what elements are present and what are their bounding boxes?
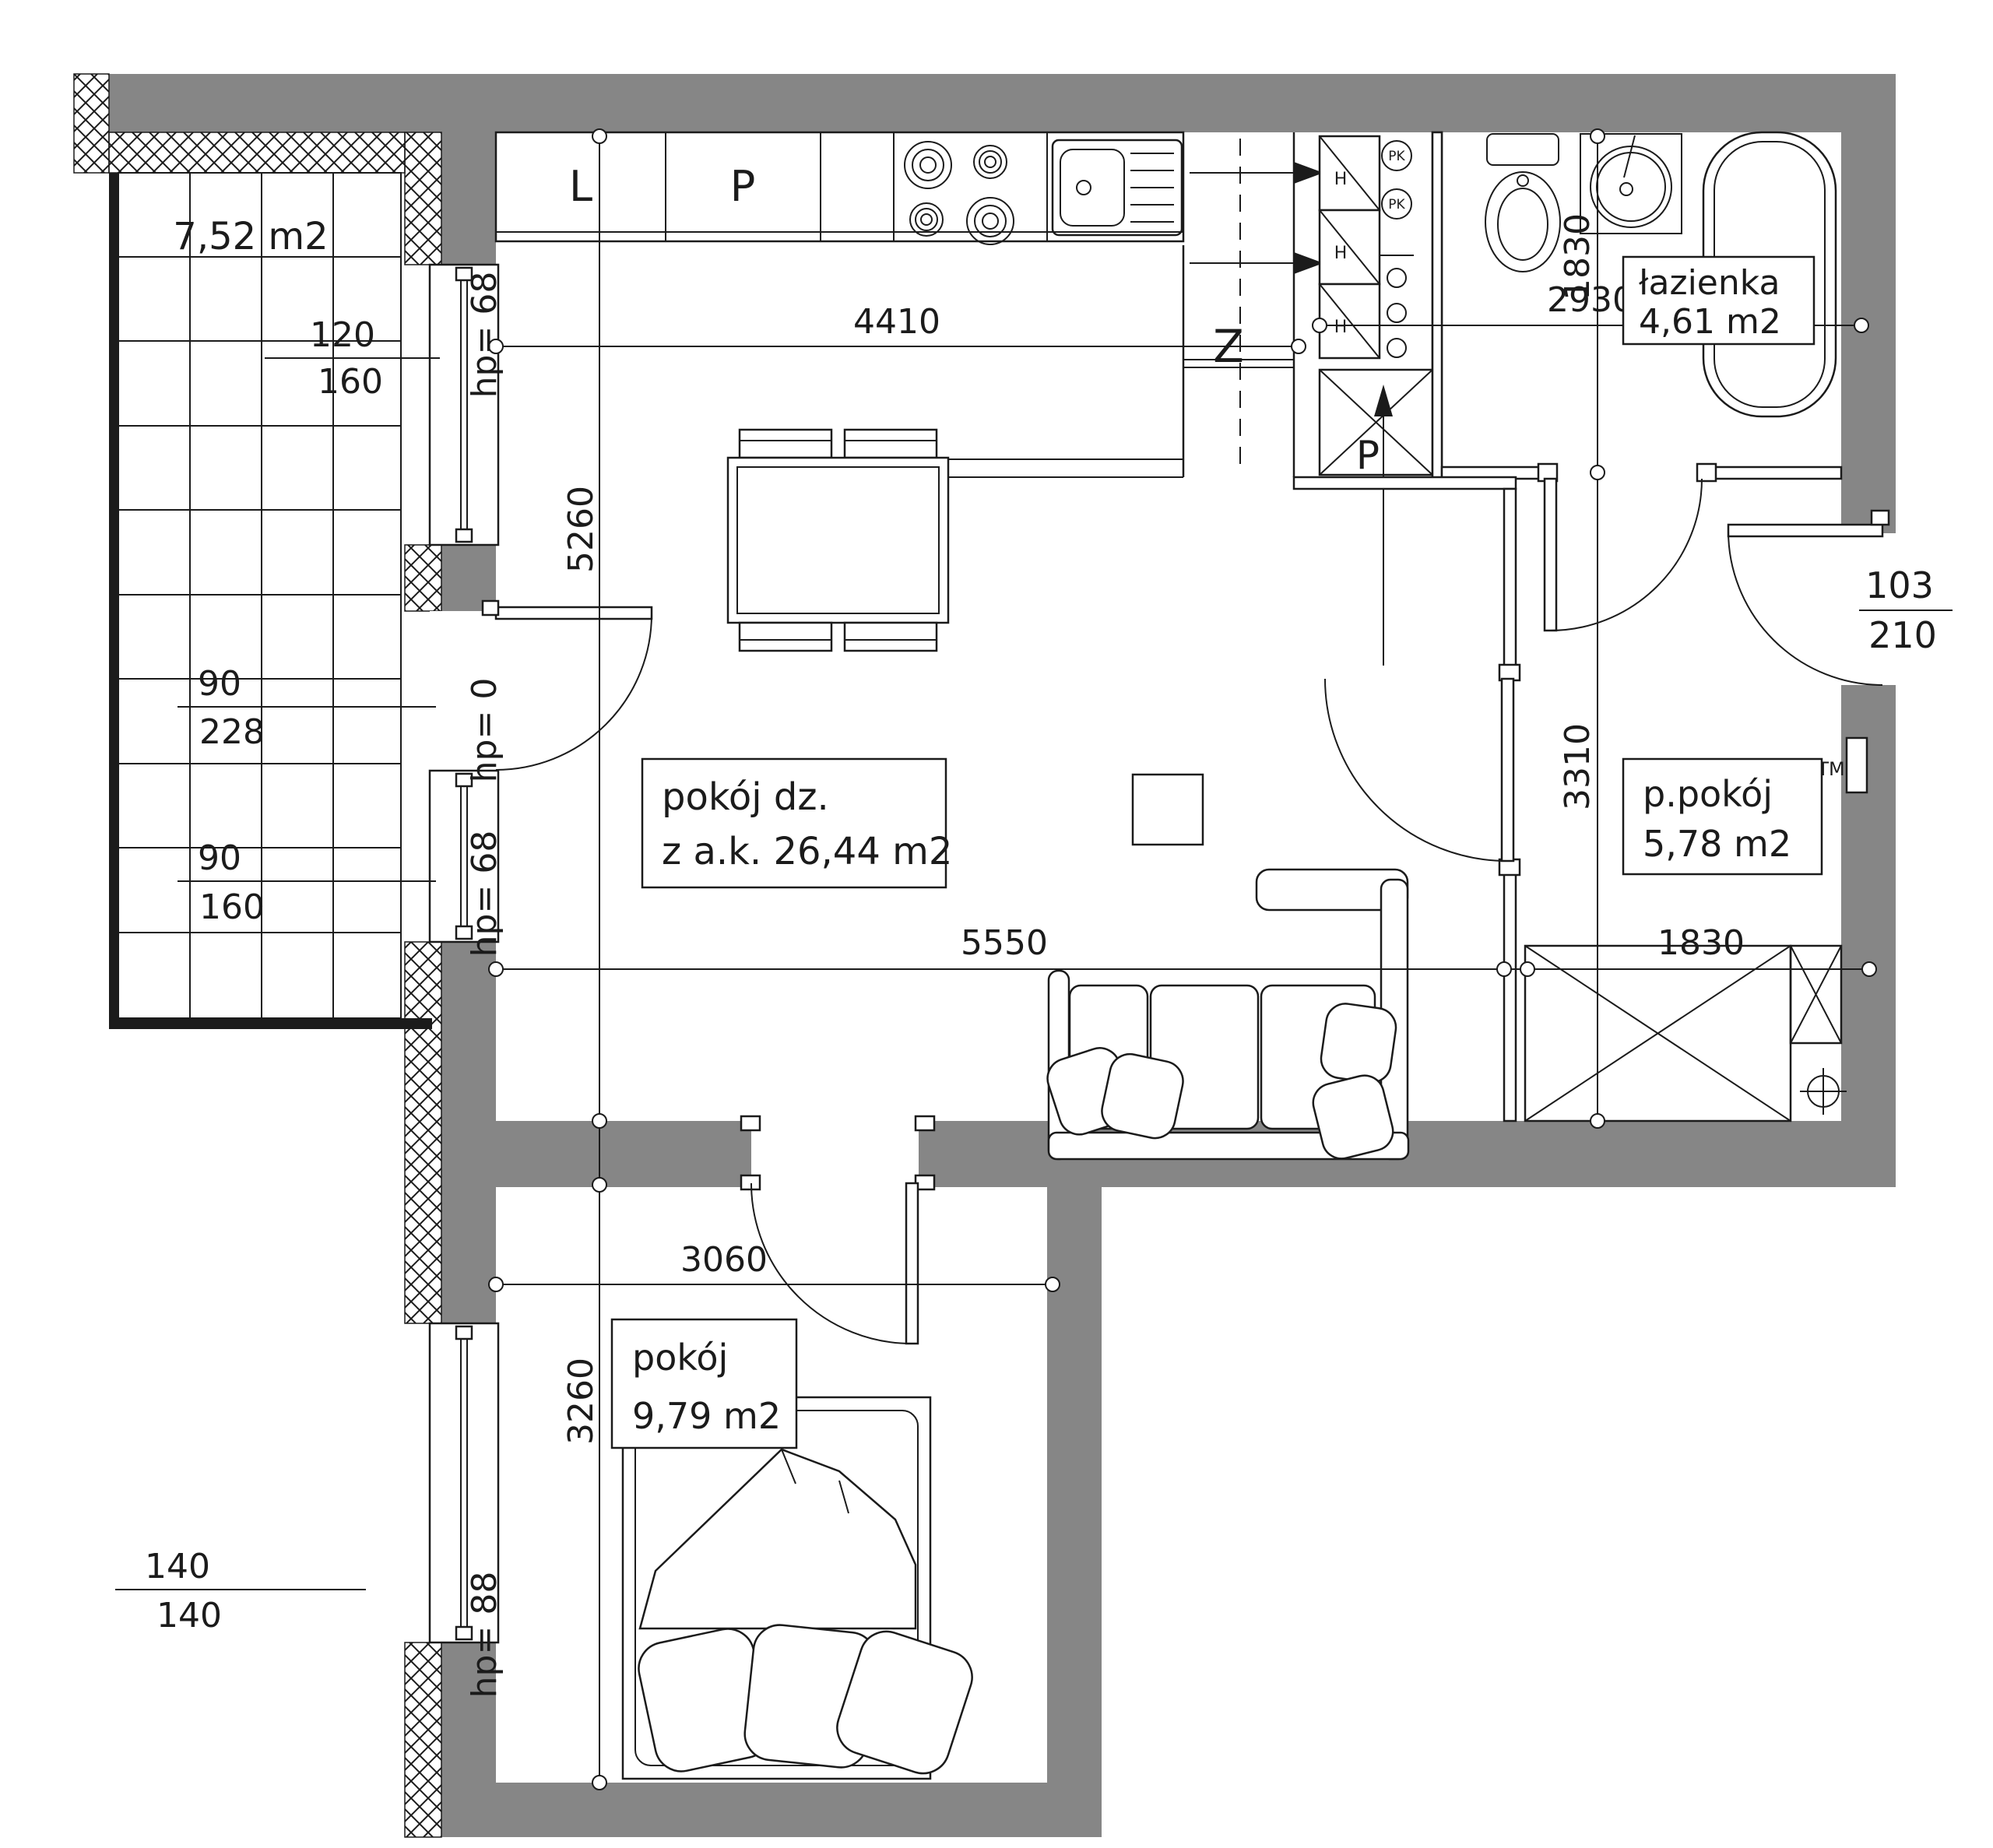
bathroom-door-leaf (1545, 479, 1556, 631)
pk-badge: PK (1382, 189, 1411, 219)
svg-text:5,78 m2: 5,78 m2 (1643, 823, 1791, 865)
chair (845, 623, 937, 651)
duct-box: H (1320, 284, 1380, 358)
svg-text:H: H (1334, 318, 1348, 337)
bathroom-door-swing-arc (1550, 479, 1702, 631)
svg-text:pokój dz.: pokój dz. (662, 775, 829, 819)
pk-badge: PK (1382, 141, 1411, 170)
svg-text:5260: 5260 (561, 486, 601, 573)
svg-text:90: 90 (198, 664, 241, 704)
kitchen-sink-icon (1053, 140, 1182, 235)
wall-bathroom-west (1432, 132, 1442, 479)
balcony-door (430, 601, 652, 770)
closet-z: Z (948, 132, 1294, 477)
svg-text:140: 140 (145, 1547, 210, 1586)
entrance-door-swing-arc (1728, 531, 1882, 685)
balcony-area-label: 7,52 m2 (173, 215, 328, 258)
entrance-door-size: 103 210 (1859, 564, 1953, 656)
dining-table (728, 458, 948, 623)
bathroom-door (1538, 464, 1716, 631)
meter-niche (1847, 738, 1867, 792)
arrow-right-icon (1190, 252, 1323, 274)
svg-text:3060: 3060 (680, 1240, 768, 1280)
svg-text:H: H (1334, 170, 1348, 189)
living-door (1325, 665, 1520, 875)
floor-drain-icon (1800, 1068, 1847, 1115)
window-120-hp: hp= 68 (465, 272, 504, 399)
svg-text:pokój: pokój (632, 1337, 728, 1379)
cooktop-icon (905, 142, 1014, 244)
window-140-size: 140 140 (115, 1547, 366, 1635)
dimension-living-height: 5260 3260 (561, 129, 606, 1790)
entrance-door (1728, 511, 1889, 685)
wall-bedroom-bottom (441, 1783, 1102, 1837)
living-door-leaf (1502, 679, 1513, 861)
room-label-hall: p.pokój 5,78 m2 (1623, 759, 1822, 874)
balcony-edge-bottom (109, 1018, 432, 1029)
duct-box: H (1320, 210, 1380, 284)
sofa-pillow (1098, 1050, 1187, 1142)
wardrobe-small (1791, 946, 1841, 1043)
svg-text:łazienka: łazienka (1639, 263, 1780, 303)
svg-text:PK: PK (1388, 197, 1405, 213)
svg-text:4410: 4410 (853, 302, 940, 342)
wall-left-pier3 (441, 942, 496, 1323)
kitchen-letter-l: L (569, 162, 592, 211)
window-90-hp: hp= 68 (465, 831, 504, 957)
duct-box: H (1320, 136, 1380, 210)
sofa-pillow (1319, 1001, 1398, 1085)
svg-text:PK: PK (1388, 149, 1405, 164)
room-label-bedroom: pokój 9,79 m2 (612, 1319, 796, 1448)
bed (623, 1397, 979, 1780)
vent-arrows (1190, 162, 1323, 274)
shaft-letter-p: P (1356, 433, 1380, 478)
svg-text:210: 210 (1868, 614, 1937, 656)
balcony-door-hp: hp= 0 (465, 678, 504, 783)
wall-bottom-left-segment (496, 1121, 751, 1187)
svg-text:120: 120 (310, 315, 375, 355)
shaft-p-box: P (1320, 370, 1432, 666)
dimension-hall-width: 1830 (1657, 923, 1745, 963)
svg-text:90: 90 (198, 838, 241, 878)
wall-hall-v1-lower (1504, 861, 1516, 1121)
room-label-bathroom: łazienka 4,61 m2 (1623, 257, 1814, 344)
svg-text:140: 140 (156, 1596, 222, 1635)
bedroom-door-leaf (906, 1183, 918, 1344)
chair (740, 623, 831, 651)
balcony: 7,52 m2 (109, 173, 432, 1029)
window-140-hp: hp= 88 (465, 1572, 504, 1699)
balcony-door-swing-arc (496, 614, 652, 770)
wall-bathroom-south-right (1701, 467, 1841, 479)
dimension-living-width: 5550 1830 (489, 923, 1876, 976)
svg-text:z a.k. 26,44 m2: z a.k. 26,44 m2 (662, 830, 952, 873)
svg-text:1830: 1830 (1558, 213, 1598, 300)
svg-text:160: 160 (199, 887, 265, 927)
dimension-hall-height: 3310 (1558, 723, 1598, 810)
room-label-living: pokój dz. z a.k. 26,44 m2 (642, 759, 952, 887)
living-door-swing-arc (1325, 679, 1507, 861)
chair (845, 430, 937, 458)
entrance-door-leaf (1728, 525, 1882, 536)
svg-text:160: 160 (318, 362, 383, 402)
wardrobe-large (1525, 946, 1791, 1121)
svg-text:4,61 m2: 4,61 m2 (1639, 302, 1781, 342)
balcony-edge-left (109, 173, 118, 1029)
svg-text:9,79 m2: 9,79 m2 (632, 1395, 781, 1437)
dimension-bedroom-height: 3260 (561, 1358, 601, 1445)
dining-set (728, 430, 948, 651)
svg-text:5550: 5550 (961, 923, 1048, 963)
toilet-icon (1485, 134, 1560, 272)
meter-circles-icon (1387, 269, 1406, 357)
svg-text:p.pokój: p.pokój (1643, 773, 1773, 815)
wall-hall-v1-upper (1504, 489, 1516, 679)
dimension-bathroom-height: 1830 3310 (1558, 129, 1605, 1128)
kitchen-letter-p: P (730, 162, 756, 211)
chair (740, 430, 831, 458)
balcony-door-leaf (496, 607, 652, 619)
floor-plan: 7,52 m2 (0, 0, 1993, 1848)
side-table (1133, 775, 1203, 845)
wall-left-pier1 (441, 132, 496, 265)
bedroom-door (741, 1116, 934, 1344)
wall-top (109, 74, 1896, 132)
arrow-right-icon (1190, 162, 1323, 184)
sofa (1042, 870, 1408, 1163)
wall-bedroom-right (1047, 1187, 1102, 1783)
shaft-column: H H H PK PK (1320, 132, 1442, 666)
svg-text:H: H (1334, 244, 1348, 263)
wall-annex-h1 (1294, 477, 1516, 489)
wall-right-bathroom (1841, 132, 1896, 533)
svg-text:228: 228 (199, 712, 265, 752)
svg-text:103: 103 (1865, 564, 1934, 606)
